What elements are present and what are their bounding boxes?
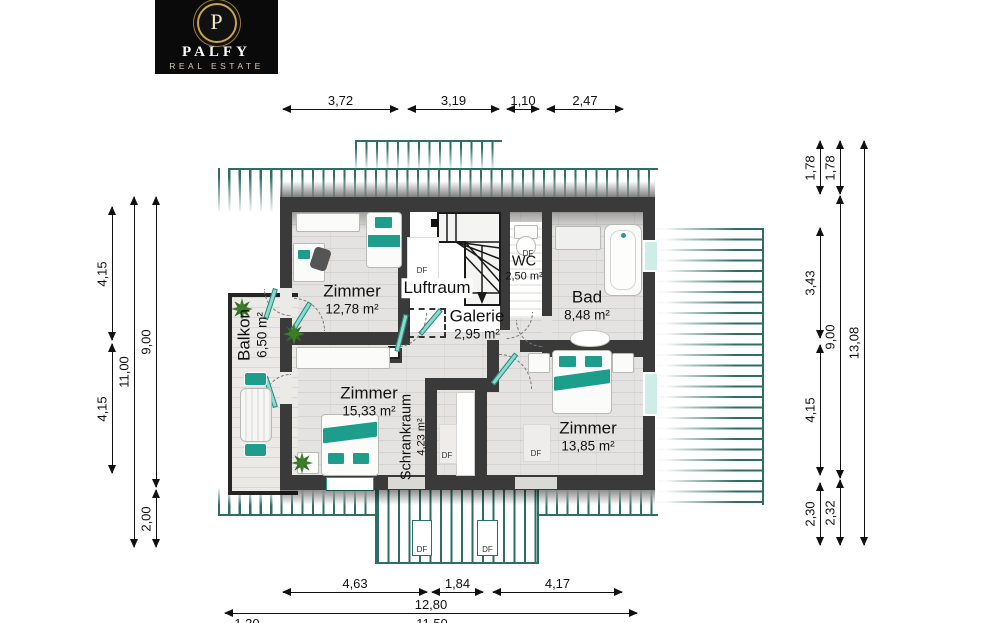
dim-bottom-417: 4,17 (493, 592, 622, 593)
bad-sink (570, 330, 610, 347)
wardrobe-zimmer1 (296, 213, 360, 232)
window-bottom-1 (326, 477, 374, 491)
df-label: DF (478, 545, 497, 554)
closet-sliding-door (456, 392, 475, 476)
window-bottom-3 (515, 477, 557, 489)
df-label: DF (437, 451, 457, 460)
dim-bottom-184: 1,84 (432, 592, 483, 593)
balcony-table (240, 388, 272, 442)
balcony-chair-2 (244, 443, 267, 457)
wardrobe-zimmer2 (296, 347, 390, 369)
dim-right-1308: 13,08 (864, 141, 865, 545)
room-label-wc: WC 2,50 m² (505, 253, 542, 282)
dim-top-4: 2,47 (547, 109, 623, 110)
room-label-zimmer2: Zimmer 15,33 m² (340, 383, 398, 418)
logo-crest-icon: P (197, 3, 237, 43)
roof-hatch-bottom-right (535, 490, 658, 516)
room-label-schrankraum: Schrankraum 4,23 m² (398, 394, 427, 480)
dim-top-1: 3,72 (283, 109, 398, 110)
dim-top-3: 1,10 (507, 109, 539, 110)
roof-hatch-left-top (218, 168, 282, 212)
dim-right-343: 3,43 (820, 228, 821, 338)
dim-right-232: 2,32 (840, 480, 841, 545)
dim-right-230: 2,30 (820, 483, 821, 545)
wall-closet-right (475, 378, 487, 490)
plant-zimmer2 (291, 452, 313, 474)
dim-bottom-463: 4,63 (283, 592, 427, 593)
room-label-zimmer1: Zimmer 12,78 m² (323, 281, 381, 316)
roof-hatch-top (228, 168, 658, 200)
logo-name: PALFY (155, 44, 278, 61)
room-label-balkon: Balkon 6,50 m² (234, 309, 269, 361)
roof-window-exterior-1: DF (412, 520, 432, 556)
dim-right-178a: 1,78 (820, 141, 821, 194)
room-label-luftraum: Luftraum (401, 278, 472, 298)
roof-hatch-right (657, 228, 764, 505)
window-right-1 (643, 240, 659, 272)
pillow-zimmer2-b (352, 452, 370, 465)
df-label: DF (412, 266, 432, 275)
pillow-zimmer2-a (327, 452, 345, 465)
bad-vanity (555, 226, 601, 250)
roof-hatch-top-upper (355, 140, 502, 170)
dim-top-2: 3,19 (408, 109, 499, 110)
window-right-2 (643, 372, 659, 416)
dim-left-415a: 4,15 (112, 207, 113, 340)
bathtub-basin (610, 230, 636, 290)
nightstand-zimmer3-b (612, 353, 634, 373)
logo-subtitle: REAL ESTATE (155, 61, 278, 71)
dim-right-415: 4,15 (820, 345, 821, 475)
pillow-zimmer3-a (558, 355, 577, 368)
df-label: DF (413, 545, 431, 554)
roof-window-exterior-2: DF (477, 520, 498, 556)
dim-bottom-1150: 11,50 (416, 616, 448, 623)
dim-right-900: 9,00 (840, 196, 841, 478)
nightstand-zimmer3-a (528, 353, 550, 373)
pillow-zimmer3-b (584, 355, 603, 368)
plant-zimmer1 (283, 323, 305, 345)
dim-bottom-130: 1,30 (234, 616, 259, 623)
balcony-chair-1 (244, 372, 267, 386)
dim-bottom-1280: 12,80 (225, 613, 637, 614)
laptop-icon (297, 249, 311, 260)
roof-hatch-dormer (375, 490, 539, 564)
bathtub-faucet (620, 232, 627, 239)
room-label-galerie: Galerie 2,95 m² (450, 306, 505, 341)
room-label-zimmer3: Zimmer 13,85 m² (559, 418, 617, 453)
floorplan-page: P PALFY REAL ESTATE DF DF (0, 0, 1006, 623)
wall-top (280, 197, 655, 212)
dim-right-178b: 1,78 (840, 141, 841, 194)
pillow-zimmer1 (374, 216, 393, 229)
stair-rail-post (431, 219, 439, 227)
dim-left-1100: 11,00 (134, 197, 135, 547)
df-label: DF (526, 449, 546, 458)
dim-left-900: 9,00 (156, 197, 157, 487)
logo-monogram: P (199, 9, 235, 35)
dim-left-200: 2,00 (156, 490, 157, 547)
realtor-logo: P PALFY REAL ESTATE (155, 0, 278, 74)
blanket-zimmer1 (367, 234, 401, 248)
room-label-bad: Bad 8,48 m² (564, 287, 610, 322)
dim-left-415b: 4,15 (112, 344, 113, 473)
